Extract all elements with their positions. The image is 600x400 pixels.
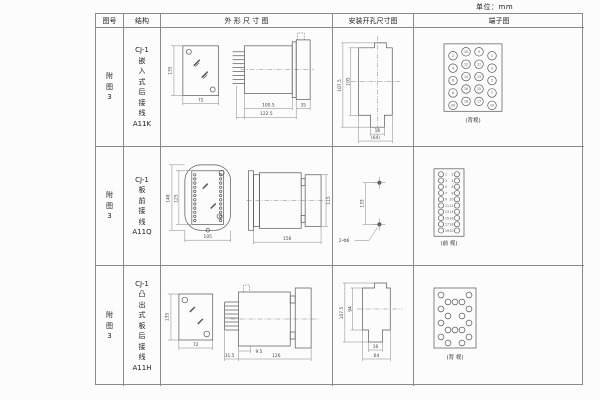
- dimension-table: 图号 结构 外 形 尺 寸 图 安装开孔尺寸图 端子图 附 图 3 CJ-1 嵌…: [95, 13, 583, 385]
- row3-structure: CJ-1 凸 出 式 板 后 接 线 A11H: [124, 266, 161, 386]
- svg-text:12: 12: [449, 204, 453, 208]
- svg-text:7: 7: [491, 91, 493, 95]
- dim-inner-height: 94: [347, 306, 353, 312]
- svg-text:20: 20: [449, 229, 453, 233]
- svg-text:7: 7: [445, 191, 447, 195]
- svg-text:18: 18: [449, 223, 453, 227]
- dim-notch-width: 16: [373, 344, 379, 350]
- row3-outline-diagram: 135 72 9.5: [161, 266, 332, 386]
- header-mounting: 安装开孔尺寸图: [333, 14, 414, 28]
- svg-text:2: 2: [451, 173, 453, 177]
- svg-text:8: 8: [452, 91, 454, 95]
- row2-outline-diagram: 148 125 105 156: [161, 147, 332, 265]
- row2-structure: CJ-1 板 前 接 线 A11Q: [124, 147, 161, 266]
- dim-outer-height: 107.5: [339, 306, 345, 319]
- row1-outline-cell: 135 72 100.5: [161, 28, 333, 147]
- dim-opening-width: (64): [371, 135, 380, 141]
- svg-text:10: 10: [449, 198, 453, 202]
- svg-text:1: 1: [491, 54, 493, 58]
- dim-rear-depth: 35: [300, 102, 306, 108]
- terminal-circles: [449, 48, 497, 110]
- row2-mounting-cell: 133 2-Φ6: [333, 147, 414, 266]
- row2-outline-cell: 148 125 105 156: [161, 147, 333, 266]
- svg-text:8: 8: [451, 191, 453, 195]
- dim-notch-width: 16: [375, 128, 381, 134]
- svg-text:1: 1: [445, 173, 447, 177]
- svg-text:5: 5: [445, 185, 447, 189]
- dim-rear-height: 115: [326, 196, 332, 205]
- row3-view-label: (背 视): [446, 353, 463, 361]
- row2-terminal-cell: 1 3 5 7 9 11 13 15 17 19 2 4 6 8 10 12 1: [414, 147, 584, 266]
- row1-terminal-diagram: 2 4 6 8 20 10 12 14 16 18 9 11 13 15 17 …: [414, 28, 584, 146]
- dim-front-width: 72: [193, 342, 199, 348]
- dim-front-height: 135: [164, 313, 170, 322]
- header-terminal: 端子图: [414, 14, 584, 28]
- dim-front-height: 135: [167, 66, 173, 75]
- svg-text:18: 18: [464, 100, 468, 104]
- row2-view-label: (前 视): [440, 239, 457, 247]
- row1-structure: CJ-1 嵌 入 式 后 接 线 A11K: [124, 28, 161, 147]
- terminal-circles: [438, 292, 472, 346]
- row2-side-view: [247, 171, 326, 230]
- svg-text:14: 14: [464, 75, 468, 79]
- row3-terminal-cell: (背 视): [414, 266, 584, 386]
- row1-view-label: (背视): [465, 116, 480, 124]
- row2-terminal-diagram: 1 3 5 7 9 11 13 15 17 19 2 4 6 8 10 12 1: [414, 147, 584, 265]
- header-outline: 外 形 尺 寸 图: [161, 14, 333, 28]
- row3-mounting-cell: 107.5 94 16 64: [333, 266, 414, 386]
- header-structure: 结构: [124, 14, 161, 28]
- row1-side-view: [233, 33, 315, 99]
- svg-text:13: 13: [477, 75, 481, 79]
- svg-text:16: 16: [449, 216, 453, 220]
- svg-text:5: 5: [491, 79, 493, 83]
- dim-body-depth: 100.5: [262, 102, 275, 108]
- row2-mounting-diagram: 133 2-Φ6: [333, 147, 413, 265]
- catalog-page: 单位：mm 图号 结构 外 形 尺 寸 图 安装开孔尺寸图 端子图 附 图 3 …: [0, 0, 600, 400]
- svg-text:20: 20: [451, 104, 455, 108]
- svg-text:4: 4: [451, 179, 453, 183]
- row3-side-view: [225, 285, 320, 348]
- svg-text:9: 9: [478, 50, 480, 54]
- unit-label: 单位：mm: [476, 2, 513, 12]
- hole-size-label: 2-Φ6: [339, 238, 350, 244]
- svg-text:16: 16: [464, 87, 468, 91]
- terminal-numbers: 1 3 5 7 9 11 13 15 17 19 2 4 6 8 10 12 1: [445, 173, 454, 233]
- svg-text:17: 17: [477, 100, 481, 104]
- row1-mounting-cell: 107.5 105 16 (64): [333, 28, 414, 147]
- dim-step-depth: 9.5: [255, 349, 262, 355]
- svg-text:15: 15: [477, 87, 481, 91]
- dim-total-depth: 122.5: [260, 111, 273, 117]
- svg-text:11: 11: [477, 62, 481, 66]
- dim-outer-height: 107.5: [337, 79, 343, 92]
- dim-front-width: 105: [204, 234, 213, 240]
- row3-outline-cell: 135 72 9.5: [161, 266, 333, 386]
- row3-terminal-diagram: (背 视): [414, 266, 584, 386]
- svg-text:4: 4: [452, 66, 454, 70]
- svg-text:10: 10: [464, 50, 468, 54]
- svg-text:6: 6: [452, 79, 454, 83]
- row2-figure-no: 附 图 3: [96, 147, 124, 266]
- svg-text:12: 12: [464, 62, 468, 66]
- row1-outline-diagram: 135 72 100.5: [161, 28, 332, 146]
- row1-mounting-diagram: 107.5 105 16 (64): [333, 28, 413, 146]
- dim-hole-spacing: 133: [360, 199, 366, 208]
- svg-text:3: 3: [491, 66, 493, 70]
- row3-figure-no: 附 图 3: [96, 266, 124, 386]
- row1-terminal-cell: 2 4 6 8 20 10 12 14 16 18 9 11 13 15 17 …: [414, 28, 584, 147]
- svg-text:6: 6: [451, 185, 453, 189]
- dim-window-height: 125: [173, 194, 179, 203]
- terminal-numbers: 2 4 6 8 20 10 12 14 16 18 9 11 13 15 17 …: [451, 50, 494, 108]
- dim-opening-width: 64: [374, 353, 380, 359]
- svg-text:19: 19: [490, 104, 494, 108]
- dim-pin-depth: 31.5: [225, 353, 235, 359]
- svg-text:2: 2: [452, 54, 454, 58]
- svg-text:9: 9: [445, 198, 447, 202]
- dim-front-height: 148: [165, 194, 171, 203]
- dim-total-depth: 156: [283, 236, 292, 242]
- header-figure: 图号: [96, 14, 124, 28]
- svg-text:3: 3: [445, 179, 447, 183]
- dim-inner-height: 105: [345, 77, 351, 86]
- dim-total-depth: 126: [272, 353, 281, 359]
- row1-figure-no: 附 图 3: [96, 28, 124, 147]
- row3-mounting-diagram: 107.5 94 16 64: [333, 266, 413, 386]
- dim-front-width: 72: [198, 97, 204, 103]
- svg-text:14: 14: [449, 210, 453, 214]
